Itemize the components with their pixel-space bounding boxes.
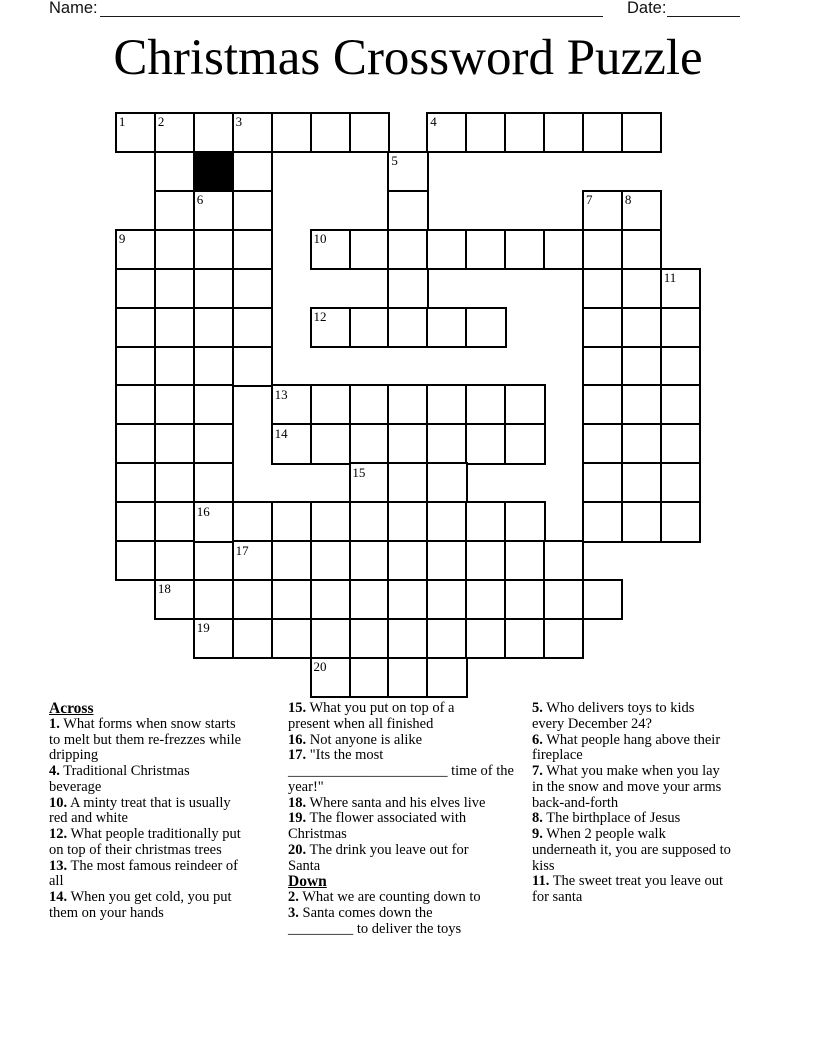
grid-cell[interactable] [349, 579, 390, 620]
grid-cell[interactable] [465, 501, 506, 542]
grid-cell[interactable] [621, 307, 662, 348]
cell-number: 10 [314, 232, 327, 245]
grid-cell[interactable] [115, 540, 156, 581]
grid-cell[interactable] [232, 501, 273, 542]
clue-number: 20. [288, 842, 306, 858]
clue-number: 8. [532, 810, 543, 826]
clue-number: 2. [288, 889, 299, 905]
grid-cell[interactable] [426, 540, 467, 581]
grid-cell[interactable] [154, 423, 195, 464]
clue-item: 18. Where santa and his elves live [288, 796, 530, 812]
grid-cell[interactable] [193, 462, 234, 503]
clue-number: 15. [288, 700, 306, 716]
grid-cell[interactable] [426, 462, 467, 503]
cell-number: 14 [275, 427, 288, 440]
grid-cell[interactable] [232, 346, 273, 387]
grid-cell[interactable] [271, 540, 312, 581]
grid-cell[interactable] [310, 579, 351, 620]
grid-cell[interactable] [582, 268, 623, 309]
grid-cell[interactable] [387, 501, 428, 542]
grid-cell[interactable] [621, 346, 662, 387]
grid-cell[interactable] [621, 112, 662, 153]
grid-cell[interactable] [621, 268, 662, 309]
grid-cell[interactable] [154, 462, 195, 503]
grid-cell[interactable] [349, 540, 390, 581]
cell-number: 2 [158, 115, 165, 128]
grid-cell[interactable] [504, 579, 545, 620]
clue-number: 5. [532, 700, 543, 716]
grid-cell[interactable] [349, 112, 390, 153]
worksheet-page: Name: Date: Christmas Crossword Puzzle 1… [0, 0, 816, 1056]
grid-cell[interactable] [154, 346, 195, 387]
clue-column-middle: 15. What you put on top of a present whe… [288, 701, 530, 937]
grid-cell[interactable] [543, 540, 584, 581]
clue-item: 1. What forms when snow starts to melt b… [49, 717, 281, 764]
grid-cell[interactable] [504, 112, 545, 153]
grid-cell[interactable] [232, 307, 273, 348]
grid-cell[interactable] [271, 501, 312, 542]
clue-item: 16. Not anyone is alike [288, 733, 530, 749]
grid-cell[interactable] [193, 423, 234, 464]
grid-cell[interactable] [582, 346, 623, 387]
clue-item: 12. What people traditionally put on top… [49, 827, 281, 859]
grid-cell[interactable] [582, 462, 623, 503]
clues-section-header: Across [49, 701, 281, 717]
clue-column-across: Across1. What forms when snow starts to … [49, 701, 281, 922]
grid-cell[interactable] [660, 462, 701, 503]
grid-cell[interactable] [465, 540, 506, 581]
grid-cell[interactable] [543, 618, 584, 659]
grid-cell[interactable] [387, 268, 428, 309]
grid-cell[interactable] [582, 112, 623, 153]
grid-cell[interactable] [349, 384, 390, 425]
clue-item: 11. The sweet treat you leave out for sa… [532, 874, 780, 906]
grid-cell[interactable] [621, 462, 662, 503]
grid-cell[interactable] [310, 112, 351, 153]
grid-cell[interactable] [349, 229, 390, 270]
grid-cell[interactable] [660, 384, 701, 425]
cell-number: 13 [275, 388, 288, 401]
grid-cell[interactable] [271, 618, 312, 659]
clue-item: 8. The birthplace of Jesus [532, 811, 780, 827]
page-title: Christmas Crossword Puzzle [0, 28, 816, 88]
clue-number: 7. [532, 763, 543, 779]
grid-cell[interactable] [582, 384, 623, 425]
grid-cell[interactable] [115, 307, 156, 348]
grid-cell[interactable] [115, 268, 156, 309]
date-label: Date: [627, 0, 666, 17]
clue-item: 9. When 2 people walk underneath it, you… [532, 827, 780, 874]
grid-cell[interactable] [426, 307, 467, 348]
cell-number: 8 [625, 193, 632, 206]
clue-item: 2. What we are counting down to [288, 890, 530, 906]
black-cell [193, 151, 234, 192]
grid-cell[interactable] [193, 307, 234, 348]
clue-number: 14. [49, 889, 67, 905]
clue-number: 10. [49, 795, 67, 811]
cell-number: 3 [236, 115, 243, 128]
grid-cell[interactable] [193, 384, 234, 425]
clue-number: 13. [49, 858, 67, 874]
cell-number: 6 [197, 193, 204, 206]
grid-cell[interactable] [582, 501, 623, 542]
grid-cell[interactable] [154, 268, 195, 309]
grid-cell[interactable] [387, 384, 428, 425]
grid-cell[interactable] [387, 190, 428, 231]
clue-number: 6. [532, 732, 543, 748]
grid-cell[interactable] [504, 229, 545, 270]
crossword-grid: 1234567891011121314151617181920 [115, 112, 703, 700]
grid-cell[interactable] [232, 579, 273, 620]
clue-number: 19. [288, 810, 306, 826]
grid-cell[interactable] [660, 307, 701, 348]
clue-number: 17. [288, 747, 306, 763]
clue-number: 18. [288, 795, 306, 811]
grid-cell[interactable] [349, 307, 390, 348]
grid-cell[interactable] [193, 346, 234, 387]
grid-cell[interactable] [504, 501, 545, 542]
grid-cell[interactable] [154, 190, 195, 231]
grid-cell[interactable] [582, 423, 623, 464]
grid-cell[interactable] [504, 384, 545, 425]
grid-cell[interactable] [426, 657, 467, 698]
grid-cell[interactable] [349, 501, 390, 542]
clue-number: 12. [49, 826, 67, 842]
grid-cell[interactable] [193, 268, 234, 309]
grid-cell[interactable] [115, 501, 156, 542]
clue-number: 11. [532, 873, 549, 889]
grid-cell[interactable] [387, 423, 428, 464]
grid-cell[interactable] [426, 501, 467, 542]
grid-cell[interactable] [621, 501, 662, 542]
grid-cell[interactable] [504, 540, 545, 581]
grid-cell[interactable] [310, 540, 351, 581]
grid-cell[interactable] [193, 579, 234, 620]
cell-number: 19 [197, 621, 210, 634]
grid-cell[interactable] [504, 423, 545, 464]
clue-item: 3. Santa comes down the _________ to del… [288, 906, 530, 938]
grid-cell[interactable] [660, 501, 701, 542]
grid-cell[interactable] [504, 618, 545, 659]
cell-number: 1 [119, 115, 126, 128]
grid-cell[interactable] [387, 229, 428, 270]
clue-item: 10. A minty treat that is usually red an… [49, 796, 281, 828]
grid-cell[interactable] [465, 307, 506, 348]
grid-cell[interactable] [465, 423, 506, 464]
grid-cell[interactable] [387, 307, 428, 348]
grid-cell[interactable] [426, 384, 467, 425]
clue-number: 9. [532, 826, 543, 842]
clue-item: 6. What people hang above their fireplac… [532, 733, 780, 765]
clue-item: 20. The drink you leave out for Santa [288, 843, 530, 875]
grid-cell[interactable] [154, 151, 195, 192]
clue-column-down: 5. Who delivers toys to kids every Decem… [532, 701, 780, 906]
grid-cell[interactable] [465, 229, 506, 270]
clue-number: 1. [49, 716, 60, 732]
grid-cell[interactable] [193, 229, 234, 270]
clue-item: 17. "Its the most ______________________… [288, 748, 530, 795]
grid-cell[interactable] [582, 579, 623, 620]
grid-cell[interactable] [426, 423, 467, 464]
cell-number: 4 [430, 115, 437, 128]
grid-cell[interactable] [232, 151, 273, 192]
grid-cell[interactable] [154, 501, 195, 542]
grid-cell[interactable] [387, 540, 428, 581]
grid-cell[interactable] [349, 423, 390, 464]
cell-number: 12 [314, 310, 327, 323]
grid-cell[interactable] [543, 112, 584, 153]
grid-cell[interactable] [154, 540, 195, 581]
date-blank-line[interactable] [667, 0, 740, 17]
grid-cell[interactable] [426, 579, 467, 620]
grid-cell[interactable] [621, 229, 662, 270]
grid-cell[interactable] [465, 579, 506, 620]
grid-cell[interactable] [387, 579, 428, 620]
grid-cell[interactable] [154, 229, 195, 270]
cell-number: 18 [158, 582, 171, 595]
clue-item: 5. Who delivers toys to kids every Decem… [532, 701, 780, 733]
clue-item: 4. Traditional Christmas beverage [49, 764, 281, 796]
grid-cell[interactable] [582, 229, 623, 270]
grid-cell[interactable] [543, 229, 584, 270]
grid-cell[interactable] [387, 462, 428, 503]
grid-cell[interactable] [387, 618, 428, 659]
cell-number: 16 [197, 505, 210, 518]
cell-number: 7 [586, 193, 593, 206]
clue-number: 16. [288, 732, 306, 748]
grid-cell[interactable] [310, 384, 351, 425]
grid-cell[interactable] [660, 346, 701, 387]
cell-number: 9 [119, 232, 126, 245]
grid-cell[interactable] [232, 190, 273, 231]
grid-cell[interactable] [193, 112, 234, 153]
grid-cell[interactable] [660, 423, 701, 464]
grid-cell[interactable] [232, 229, 273, 270]
cell-number: 20 [314, 660, 327, 673]
grid-cell[interactable] [465, 618, 506, 659]
clue-item: 19. The flower associated with Christmas [288, 811, 530, 843]
cell-number: 17 [236, 544, 249, 557]
grid-cell[interactable] [232, 618, 273, 659]
grid-cell[interactable] [582, 307, 623, 348]
grid-cell[interactable] [271, 579, 312, 620]
grid-cell[interactable] [426, 618, 467, 659]
grid-cell[interactable] [115, 462, 156, 503]
grid-cell[interactable] [310, 423, 351, 464]
grid-cell[interactable] [154, 384, 195, 425]
grid-cell[interactable] [543, 579, 584, 620]
grid-cell[interactable] [349, 657, 390, 698]
clue-item: 13. The most famous reindeer of all [49, 859, 281, 891]
clue-number: 4. [49, 763, 60, 779]
grid-cell[interactable] [115, 346, 156, 387]
grid-cell[interactable] [426, 229, 467, 270]
grid-cell[interactable] [310, 501, 351, 542]
grid-cell[interactable] [115, 384, 156, 425]
grid-cell[interactable] [465, 384, 506, 425]
clues-section-header: Down [288, 874, 530, 890]
grid-cell[interactable] [232, 268, 273, 309]
clue-number: 3. [288, 905, 299, 921]
cell-number: 11 [664, 271, 677, 284]
cell-number: 15 [352, 466, 365, 479]
clue-item: 7. What you make when you lay in the sno… [532, 764, 780, 811]
grid-cell[interactable] [387, 657, 428, 698]
grid-cell[interactable] [621, 384, 662, 425]
cell-number: 5 [391, 154, 398, 167]
grid-cell[interactable] [154, 307, 195, 348]
name-blank-line[interactable] [100, 0, 603, 17]
grid-cell[interactable] [115, 423, 156, 464]
name-label: Name: [49, 0, 98, 17]
clue-item: 14. When you get cold, you put them on y… [49, 890, 281, 922]
grid-cell[interactable] [271, 112, 312, 153]
grid-cell[interactable] [621, 423, 662, 464]
clue-item: 15. What you put on top of a present whe… [288, 701, 530, 733]
grid-cell[interactable] [465, 112, 506, 153]
grid-cell[interactable] [349, 618, 390, 659]
grid-cell[interactable] [310, 618, 351, 659]
